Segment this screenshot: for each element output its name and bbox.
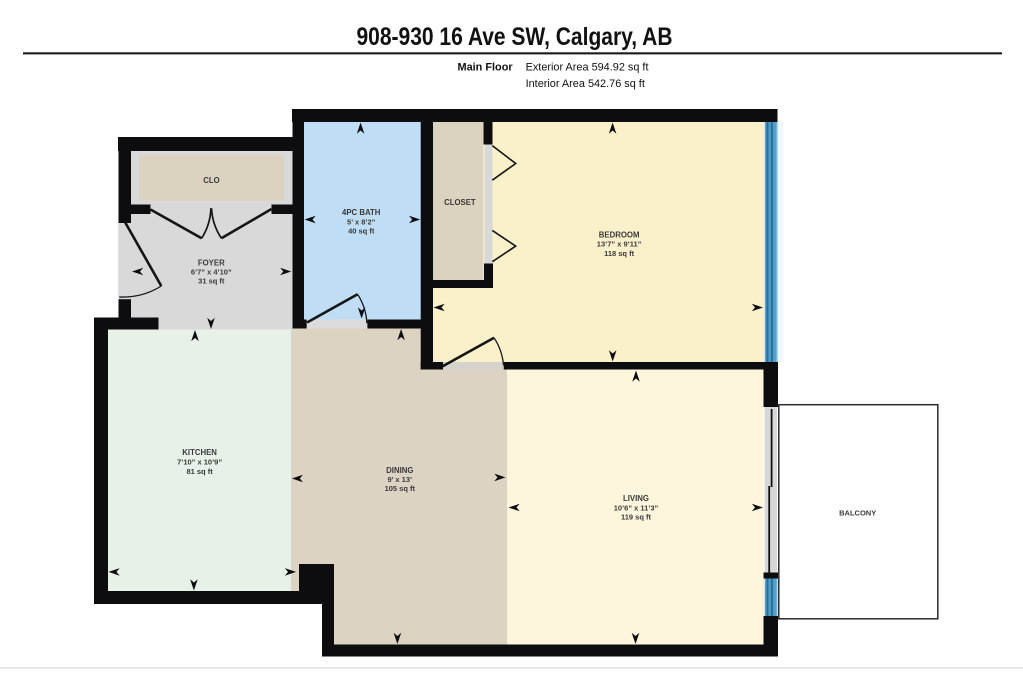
svg-text:FOYER: FOYER <box>198 258 225 267</box>
svg-text:81 sq ft: 81 sq ft <box>186 467 213 476</box>
svg-text:118 sq ft: 118 sq ft <box>604 249 635 258</box>
svg-text:4PC BATH: 4PC BATH <box>342 208 381 217</box>
svg-text:6’7” x 4’10”: 6’7” x 4’10” <box>191 268 232 277</box>
svg-text:KITCHEN: KITCHEN <box>182 448 217 457</box>
svg-text:40 sq ft: 40 sq ft <box>348 227 375 236</box>
svg-text:119 sq ft: 119 sq ft <box>621 513 652 522</box>
svg-text:9’ x 13’: 9’ x 13’ <box>387 475 412 484</box>
svg-text:CLO: CLO <box>203 176 219 185</box>
svg-text:CLOSET: CLOSET <box>444 198 476 207</box>
svg-text:BEDROOM: BEDROOM <box>599 230 640 239</box>
svg-text:105 sq ft: 105 sq ft <box>385 484 416 493</box>
svg-text:908-930 16 Ave SW, Calgary, AB: 908-930 16 Ave SW, Calgary, AB <box>357 23 673 51</box>
svg-text:LIVING: LIVING <box>623 494 649 503</box>
svg-text:BALCONY: BALCONY <box>839 509 876 518</box>
svg-text:31 sq ft: 31 sq ft <box>198 277 225 286</box>
svg-text:13’7” x 9’11”: 13’7” x 9’11” <box>597 240 642 249</box>
svg-text:Main Floor: Main Floor <box>458 62 514 74</box>
svg-text:Interior Area 542.76 sq ft: Interior Area 542.76 sq ft <box>526 78 645 90</box>
svg-text:DINING: DINING <box>386 466 413 475</box>
svg-text:Exterior Area 594.92 sq ft: Exterior Area 594.92 sq ft <box>526 62 649 74</box>
svg-text:7’10” x 10’9”: 7’10” x 10’9” <box>177 457 222 466</box>
svg-text:5’ x 8’2”: 5’ x 8’2” <box>347 217 376 226</box>
svg-text:10’6” x 11’3”: 10’6” x 11’3” <box>614 503 659 512</box>
